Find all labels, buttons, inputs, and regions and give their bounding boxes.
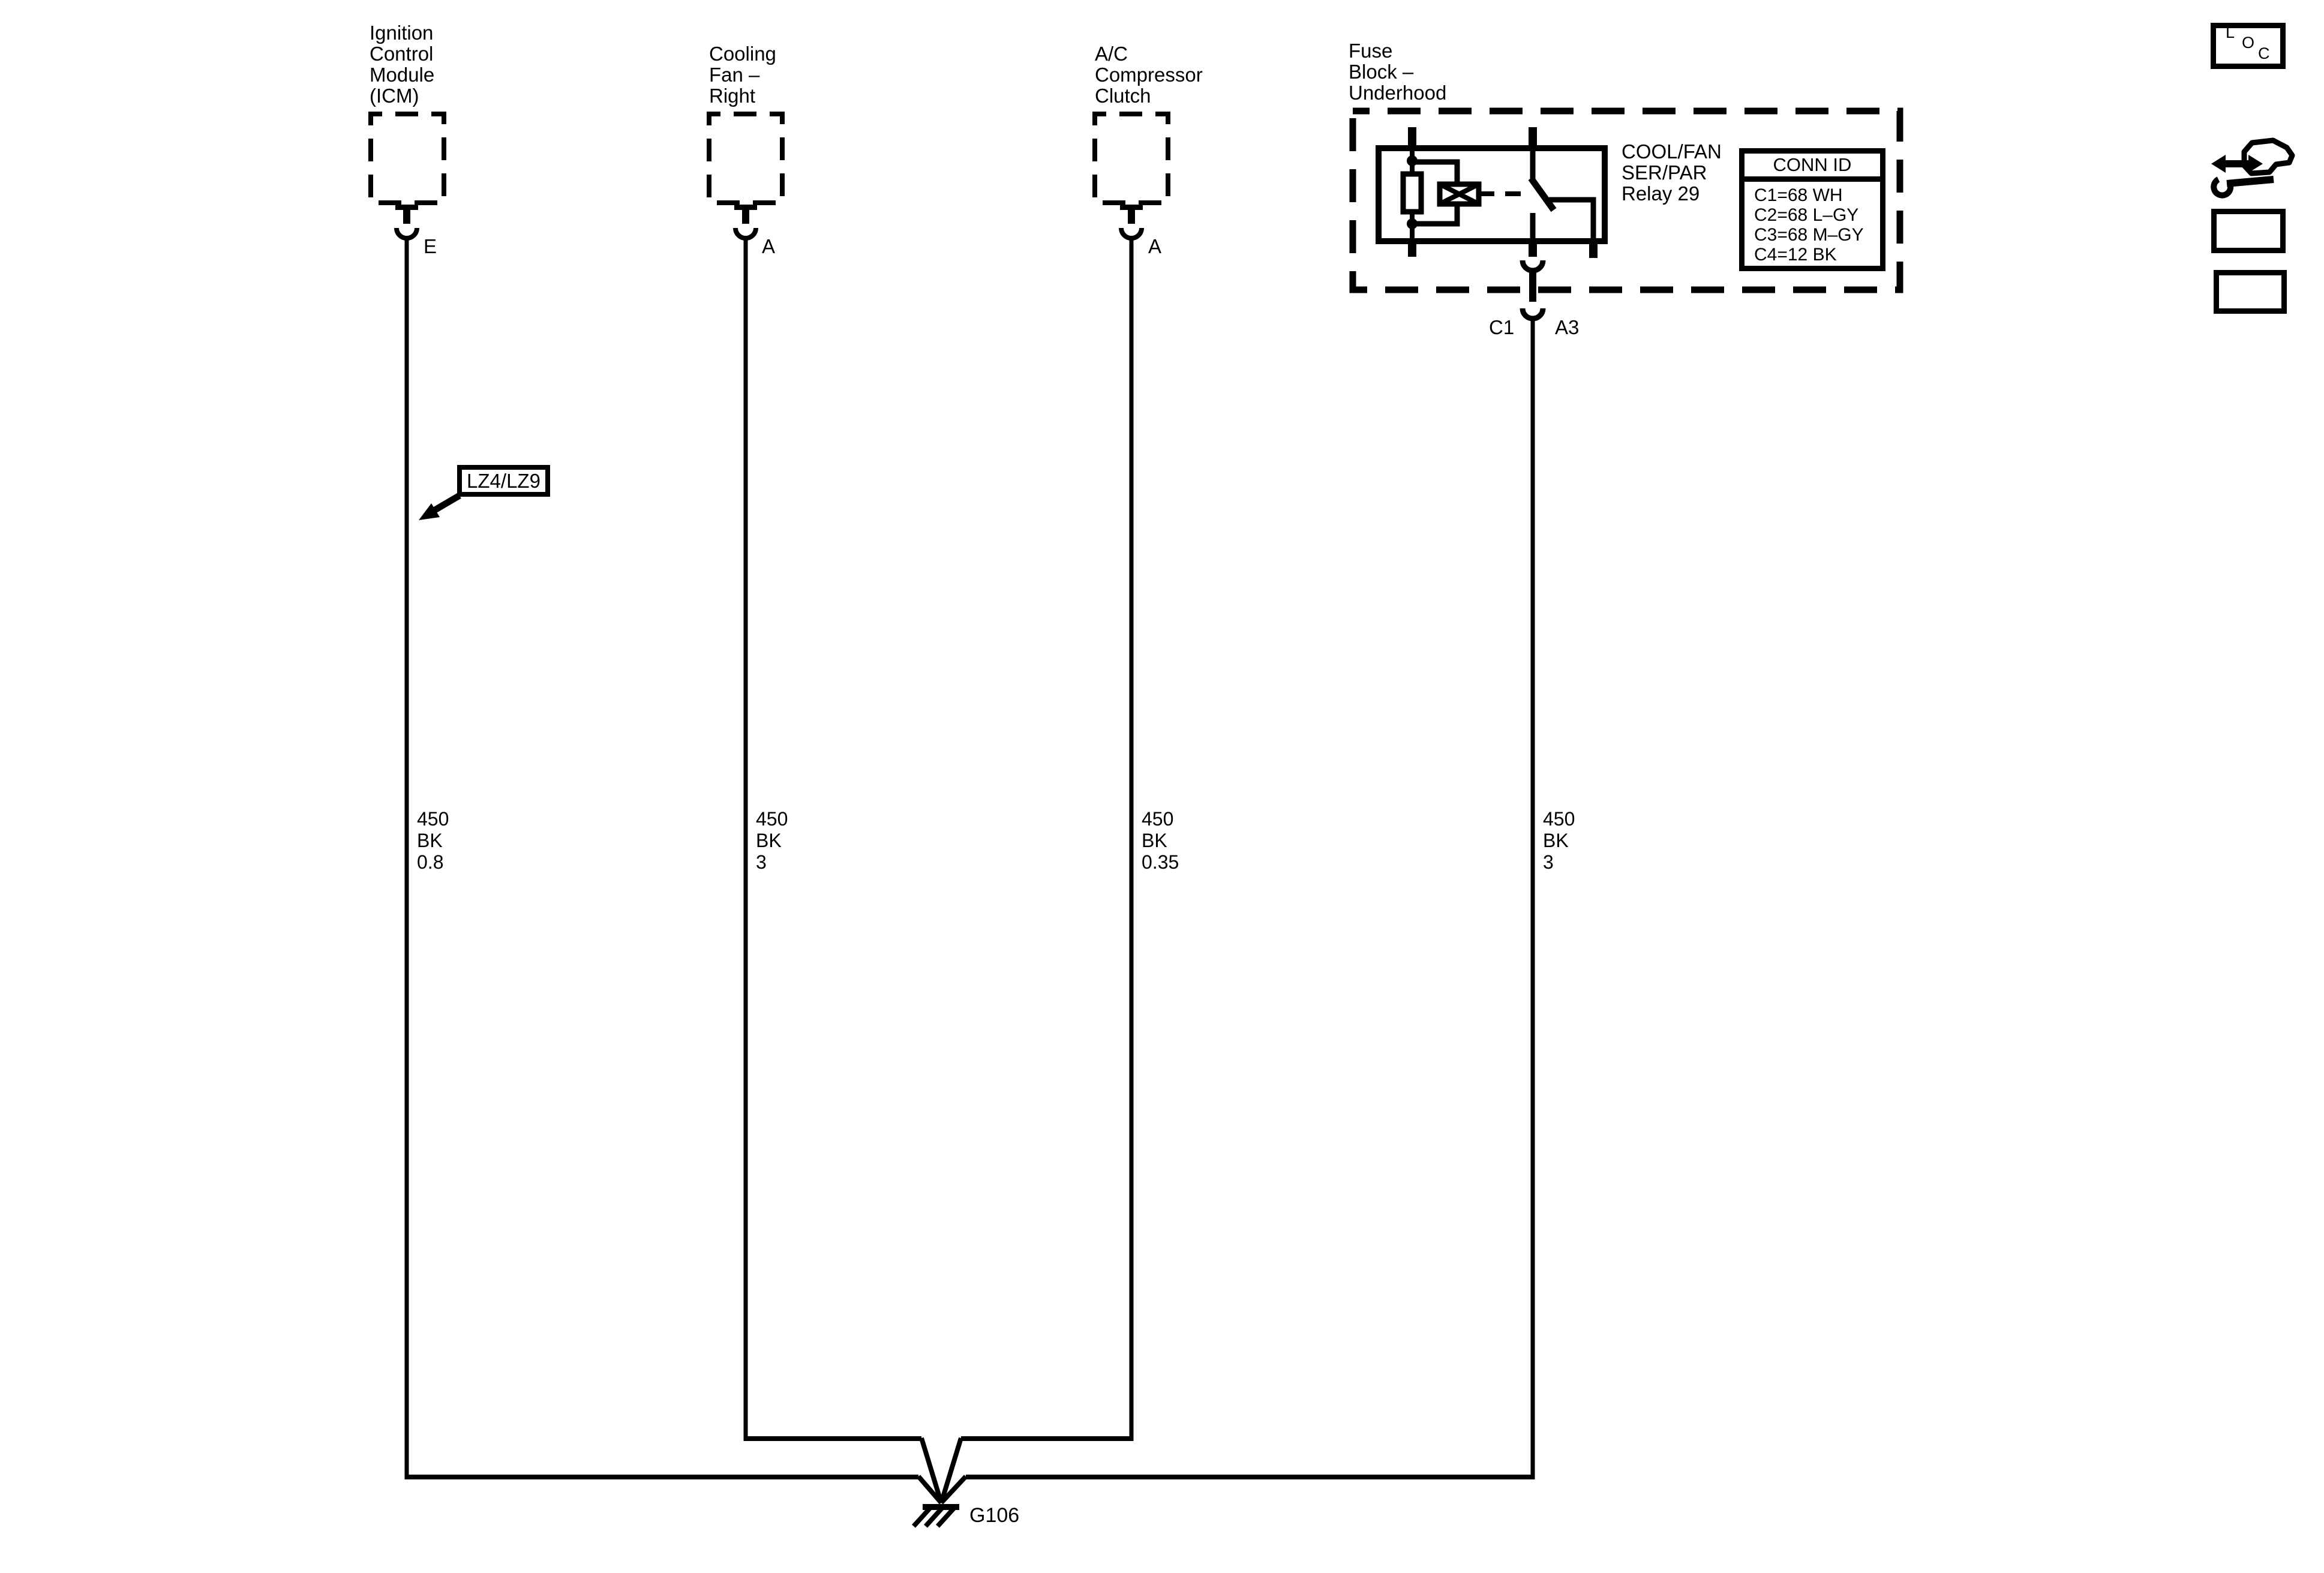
terminal-cup [397,228,417,238]
ground-symbol [914,1507,959,1526]
next-page-button[interactable] [2211,209,2286,253]
conn-id-title: CONN ID [1744,154,1880,182]
cooling-fan-label: Cooling Fan – Right [709,43,776,106]
engine-callout-text: LZ4/LZ9 [467,470,541,493]
conn-id-rows: C1=68 WH C2=68 L–GY C3=68 M–GY C4=12 BK [1744,182,1880,265]
pin-label-cooling-a: A [762,236,775,256]
inline-connector-lower-cup [1523,308,1543,319]
connector-label-a3: A3 [1555,317,1579,337]
relay-pin-bottom-left [1408,240,1416,257]
relay-pin-top-left [1408,127,1416,150]
component-boxes [371,114,1168,203]
icm-terminal-connector [395,205,418,238]
cooling-fan-dashed-box [709,114,782,203]
relay-switch-blade [1531,178,1554,210]
cooling-fan-terminal-connector [734,205,757,238]
loc-letter-o: O [2242,35,2254,51]
relay-pin-bottom-right [1589,240,1598,258]
relay-switch-right-path [1549,200,1593,241]
terminal-stem [742,205,749,224]
wrench-handle-icon [2227,179,2274,184]
inline-connector-stem [1529,271,1536,302]
icm-dashed-box [371,114,444,203]
ac-clutch-dashed-box [1095,114,1168,203]
relay-pin-top-middle [1529,127,1537,150]
callout-arrow-shaft [432,496,460,512]
cool-fan-relay [1379,127,1605,258]
callout-arrow [419,496,460,520]
engine-callout-lz4-lz9: LZ4/LZ9 [457,465,550,497]
fuse-block-label: Fuse Block – Underhood [1349,40,1446,103]
wire-label-cooling-fan: 450 BK 3 [756,808,788,873]
connector-label-c1: C1 [1489,317,1514,337]
prev-page-button[interactable] [2214,270,2287,314]
relay-pin-bottom-middle [1529,240,1537,257]
double-arrow-left-head [2211,155,2226,173]
ground-label: G106 [969,1505,1019,1526]
loc-letter-c: C [2258,46,2270,62]
icm-label: Ignition Control Module (ICM) [370,22,434,106]
terminal-cup [1121,228,1142,238]
terminal-cup [735,228,756,238]
loc-letter-l: L [2226,25,2235,41]
conn-id-table: CONN ID C1=68 WH C2=68 L–GY C3=68 M–GY C… [1739,148,1885,271]
wire-label-ac-clutch: 450 BK 0.35 [1142,808,1179,873]
ac-clutch-label: A/C Compressor Clutch [1095,43,1203,106]
wire-runs [407,238,1533,1479]
ground-bus-lines [407,1438,1533,1503]
schematic-graphics [0,0,2324,1573]
terminal-stem [403,205,410,224]
wiring-diagram-page: Ignition Control Module (ICM) Cooling Fa… [0,0,2324,1573]
inline-connector-upper-cup [1523,260,1543,271]
pin-label-ac-a: A [1148,236,1161,256]
wire-label-relay-out: 450 BK 3 [1543,808,1575,873]
terminal-stem [1128,205,1135,224]
relay-label: COOL/FAN SER/PAR Relay 29 [1622,141,1722,204]
wire-label-icm: 450 BK 0.8 [417,808,449,873]
pin-label-icm-e: E [424,236,437,256]
relay-resistor [1403,174,1421,212]
vehicle-link-icon[interactable] [2211,140,2292,196]
ac-clutch-terminal-connector [1120,205,1143,238]
